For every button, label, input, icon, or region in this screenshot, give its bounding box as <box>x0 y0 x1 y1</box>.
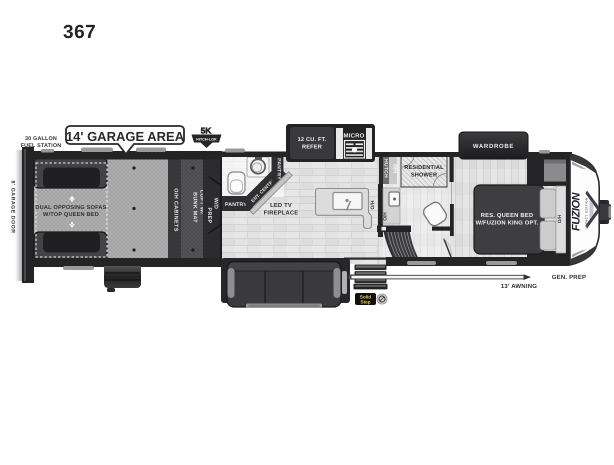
svg-text:RESIDENTIAL: RESIDENTIAL <box>404 165 444 171</box>
svg-text:SHOWER: SHOWER <box>411 173 437 179</box>
svg-text:HITCH-LOK: HITCH-LOK <box>196 138 217 142</box>
svg-text:12 CU. FT.: 12 CU. FT. <box>298 137 327 143</box>
svg-text:Step: Step <box>361 300 371 305</box>
svg-text:30 GALLON: 30 GALLON <box>25 136 57 142</box>
svg-text:W/TOP QUEEN BED: W/TOP QUEEN BED <box>43 211 99 218</box>
svg-text:13' AWNING: 13' AWNING <box>501 283 537 290</box>
svg-text:O/H: O/H <box>557 214 563 223</box>
svg-text:MICRO: MICRO <box>344 133 365 140</box>
svg-text:W/FUZION KING OPT.: W/FUZION KING OPT. <box>476 220 539 227</box>
svg-text:FUEL STATION: FUEL STATION <box>21 143 62 149</box>
svg-text:5K: 5K <box>201 126 213 136</box>
svg-text:W/D: W/D <box>213 198 219 209</box>
svg-text:O/H: O/H <box>383 212 389 221</box>
svg-text:BUNK MAT: BUNK MAT <box>192 192 198 223</box>
svg-text:PANTRY: PANTRY <box>225 202 247 208</box>
svg-text:FIREPLACE: FIREPLACE <box>264 210 299 217</box>
svg-text:FUZION: FUZION <box>571 191 583 230</box>
svg-text:LED TV: LED TV <box>270 203 292 209</box>
svg-text:PREP: PREP <box>206 208 212 224</box>
svg-text:IMPACT EDITION: IMPACT EDITION <box>585 197 589 228</box>
svg-text:O/H: O/H <box>370 200 376 209</box>
svg-text:O/H CABINETS: O/H CABINETS <box>173 188 179 231</box>
svg-text:14' GARAGE AREA: 14' GARAGE AREA <box>66 129 185 144</box>
svg-text:RES. QUEEN BED: RES. QUEEN BED <box>481 212 533 219</box>
svg-text:WARDROBE: WARDROBE <box>473 143 514 150</box>
svg-text:REFER: REFER <box>302 145 322 151</box>
svg-text:367: 367 <box>63 22 96 43</box>
svg-text:PANTRY: PANTRY <box>276 158 282 180</box>
svg-text:8' GARAGE DOOR: 8' GARAGE DOOR <box>10 180 16 233</box>
svg-text:DUAL OPPOSING SOFAS: DUAL OPPOSING SOFAS <box>35 205 106 211</box>
svg-text:GEN. PREP: GEN. PREP <box>552 274 586 281</box>
